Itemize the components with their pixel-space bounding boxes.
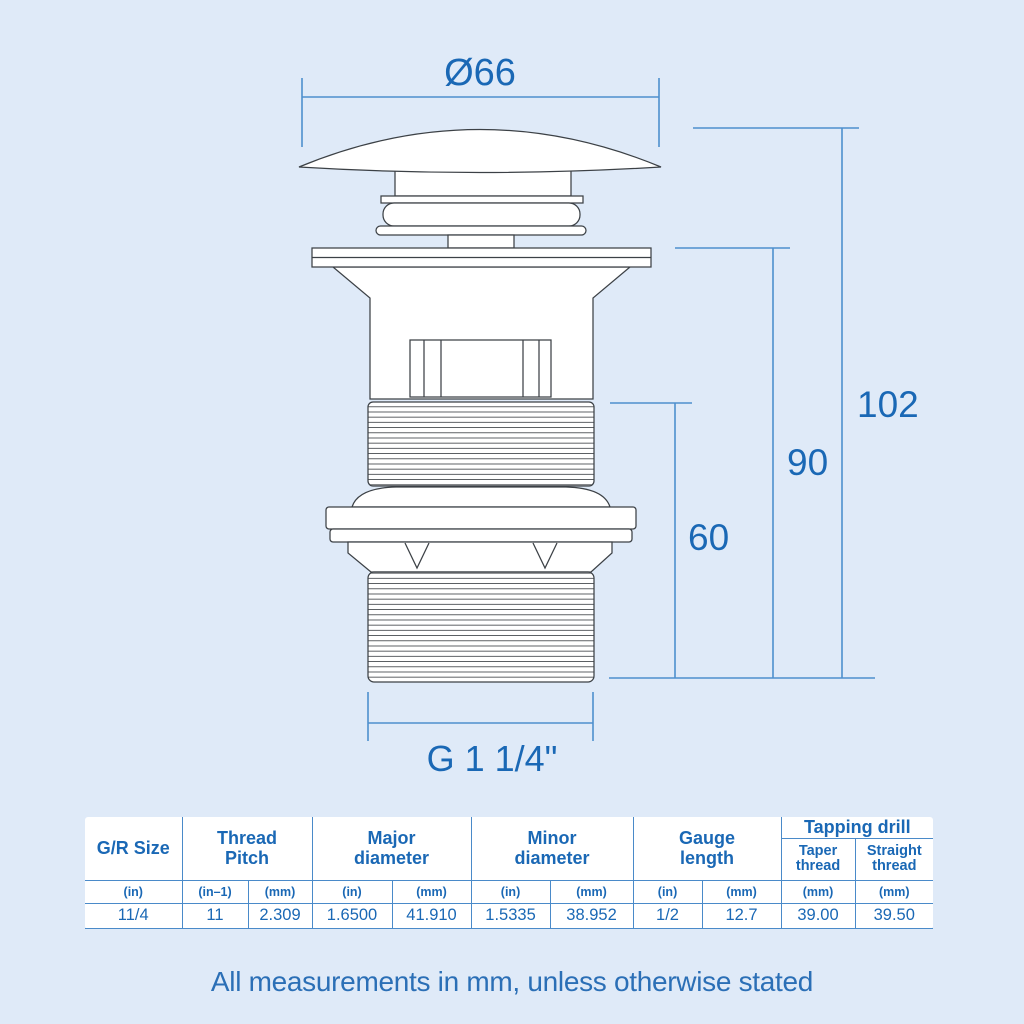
col-header-major-diameter: Major diameter [312, 817, 471, 880]
unit-cell: (mm) [702, 880, 781, 903]
washer-mid [376, 226, 586, 235]
unit-cell: (mm) [248, 880, 312, 903]
overflow-slot [410, 340, 551, 397]
value-cell-minor-in: 1.5335 [471, 903, 550, 928]
value-cell-pitch-mm: 2.309 [248, 903, 312, 928]
dimension-label-102: 102 [857, 384, 919, 425]
spec-table-panel: G/R Size Thread Pitch Major diameter Min… [85, 817, 933, 929]
values-row: 11/4 11 2.309 1.6500 41.910 1.5335 38.95… [85, 903, 933, 928]
washer-top [381, 196, 583, 203]
value-cell-straight-mm: 39.50 [855, 903, 933, 928]
basin-waste-technical-drawing: Ø66 102 90 60 G 1 1/4" [0, 0, 1024, 812]
value-cell-pitch-in: 11 [182, 903, 248, 928]
unit-cell: (in) [312, 880, 392, 903]
waste-plug-outline [299, 130, 661, 683]
upper-thread [368, 402, 594, 486]
value-cell-major-mm: 41.910 [392, 903, 471, 928]
value-cell-gauge-in: 1/2 [633, 903, 702, 928]
unit-cell: (in) [85, 880, 182, 903]
lower-thread [368, 572, 594, 682]
value-cell-minor-mm: 38.952 [550, 903, 633, 928]
col-header-gr-size: G/R Size [85, 817, 182, 880]
col-header-thread-pitch: Thread Pitch [182, 817, 312, 880]
unit-cell: (mm) [855, 880, 933, 903]
dimension-label-90: 90 [787, 442, 828, 483]
units-row: (in) (in–1) (mm) (in) (mm) (in) (mm) (in… [85, 880, 933, 903]
unit-cell: (mm) [550, 880, 633, 903]
stem [448, 235, 514, 248]
shoulder [352, 487, 610, 507]
dimension-label-thread-size: G 1 1/4" [427, 738, 558, 779]
dimension-label-diameter: Ø66 [444, 52, 516, 94]
sealing-washer [326, 507, 636, 529]
unit-cell: (in) [633, 880, 702, 903]
col-header-gauge-length: Gauge length [633, 817, 781, 880]
dimension-label-60: 60 [688, 517, 729, 558]
dome-cap [299, 130, 661, 173]
value-cell-major-in: 1.6500 [312, 903, 392, 928]
sealing-washer-thin [330, 529, 632, 542]
measurement-note: All measurements in mm, unless otherwise… [0, 966, 1024, 998]
col-header-minor-diameter: Minor diameter [471, 817, 633, 880]
value-cell-gr-size: 11/4 [85, 903, 182, 928]
thread-spec-table: G/R Size Thread Pitch Major diameter Min… [85, 817, 933, 929]
col-header-tapping-drill: Tapping drill [781, 817, 933, 838]
o-ring-barrel [383, 203, 580, 226]
backnut [348, 542, 612, 572]
unit-cell: (in) [471, 880, 550, 903]
product-spec-page: Ø66 102 90 60 G 1 1/4" G/R Size Thread P… [0, 0, 1024, 1024]
value-cell-taper-mm: 39.00 [781, 903, 855, 928]
unit-cell: (in–1) [182, 880, 248, 903]
col-header-straight-thread: Straight thread [855, 838, 933, 880]
col-header-taper-thread: Taper thread [781, 838, 855, 880]
value-cell-gauge-mm: 12.7 [702, 903, 781, 928]
unit-cell: (mm) [392, 880, 471, 903]
unit-cell: (mm) [781, 880, 855, 903]
